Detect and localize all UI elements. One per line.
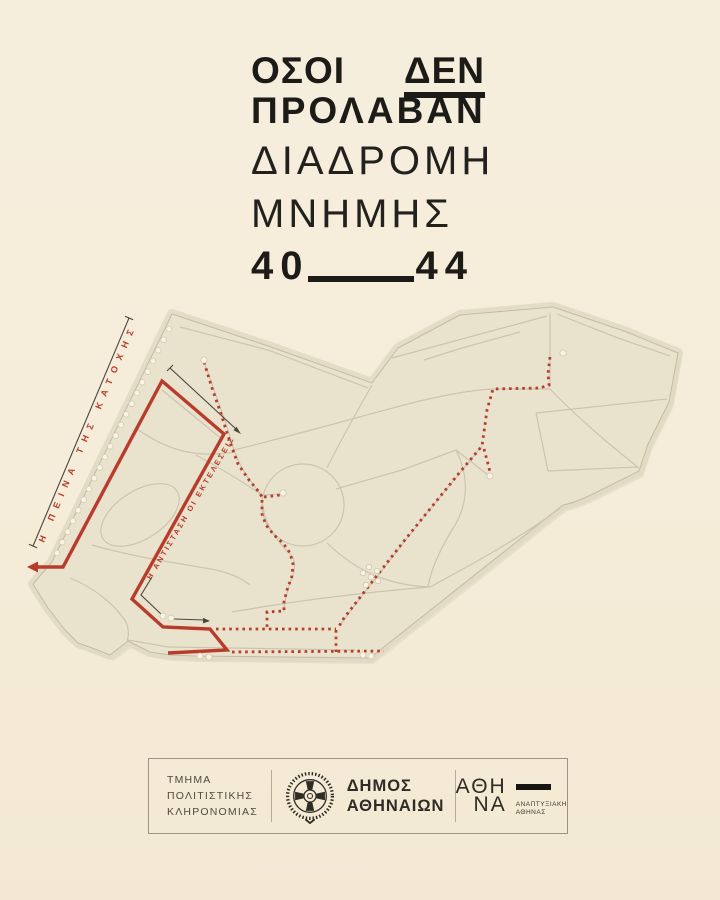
edge-dot <box>124 412 130 418</box>
athina-wordmark: ΑΘΗ ΝΑ <box>456 778 507 814</box>
development-agency: ΑΝΑΠΤΥΞΙΑΚΗ ΑΘΗΝΑΣ <box>516 784 567 817</box>
municipality-block: ΔΗΜΟΣ ΑΘΗΝΑΙΩΝ <box>272 768 455 824</box>
edge-dot <box>86 486 92 492</box>
development-line: ΑΝΑΠΤΥΞΙΑΚΗ <box>516 801 567 809</box>
edge-dot <box>118 422 124 428</box>
department-line: ΠΟΛΙΤΙΣΤΙΚΗΣ <box>167 788 271 804</box>
development-line: ΑΘΗΝΑΣ <box>516 809 567 817</box>
edge-dot <box>76 508 82 514</box>
edge-dot <box>65 529 71 535</box>
edge-dot <box>81 497 87 503</box>
municipality-line: ΑΘΗΝΑΙΩΝ <box>347 796 445 816</box>
edge-dot <box>156 348 162 354</box>
department-line: ΤΜΗΜΑ <box>167 772 271 788</box>
edge-dot <box>145 369 151 375</box>
edge-dot <box>134 390 140 396</box>
edge-dot <box>102 454 108 460</box>
edge-dot <box>54 550 60 556</box>
athens-municipality-emblem <box>282 768 338 824</box>
edge-dot <box>161 337 167 343</box>
municipality-line: ΔΗΜΟΣ <box>347 776 445 796</box>
athina-development-block: ΑΘΗ ΝΑ ΑΝΑΠΤΥΞΙΑΚΗ ΑΘΗΝΑΣ <box>456 775 567 817</box>
edge-dot <box>166 326 172 332</box>
edge-dot <box>150 358 156 364</box>
edge-dot <box>97 465 103 471</box>
edge-dot <box>108 444 114 450</box>
athina-line: ΝΑ <box>456 796 507 814</box>
edge-dot <box>140 380 146 386</box>
department-name: ΤΜΗΜΑ ΠΟΛΙΤΙΣΤΙΚΗΣ ΚΛΗΡΟΝΟΜΙΑΣ <box>149 772 271 820</box>
municipality-name: ΔΗΜΟΣ ΑΘΗΝΑΙΩΝ <box>347 776 445 816</box>
footer-credits-bar: ΤΜΗΜΑ ΠΟΛΙΤΙΣΤΙΚΗΣ ΚΛΗΡΟΝΟΜΙΑΣ ΔΗΜΟΣ ΑΘΗ… <box>148 758 568 834</box>
route-dotted-circle-spur <box>264 495 280 497</box>
memorial-route-poster: ΟΣΟΙ ΔΕΝ ΠΡΟΛΑΒΑΝ ΔΙΑΔΡΟΜΗ ΜΝΗΜΗΣ 40 44 <box>0 0 720 900</box>
department-line: ΚΛΗΡΟΝΟΜΙΑΣ <box>167 804 271 820</box>
edge-dot <box>60 540 66 546</box>
edge-dot <box>92 476 98 482</box>
edge-dot <box>113 433 119 439</box>
edge-dot <box>129 401 135 407</box>
development-agency-bar <box>516 784 551 790</box>
edge-dot <box>70 518 76 524</box>
